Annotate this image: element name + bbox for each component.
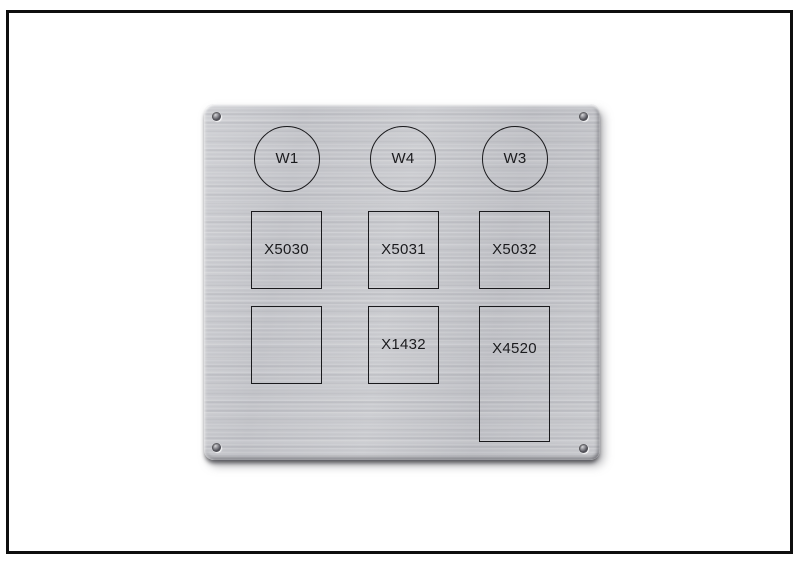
screw-hole-icon [579, 112, 588, 121]
screw-hole-icon [212, 443, 221, 452]
engraved-circle-w4: W4 [370, 126, 436, 192]
square-label: X5030 [264, 241, 309, 259]
screw-hole-icon [212, 112, 221, 121]
square-label: X5032 [492, 241, 537, 259]
engraved-square-x5030: X5030 [251, 211, 322, 289]
circle-label: W3 [503, 150, 526, 168]
square-label: X5031 [381, 241, 426, 259]
product-photo-canvas: W1 W4 W3 X5030 X5031 X5032 X1432 X4520 [0, 0, 800, 565]
square-label: X4520 [492, 340, 537, 358]
square-label: X1432 [381, 336, 426, 354]
engraved-square-x5032: X5032 [479, 211, 550, 289]
engraved-square-x5031: X5031 [368, 211, 439, 289]
engraved-circle-w1: W1 [254, 126, 320, 192]
engraved-circle-w3: W3 [482, 126, 548, 192]
circle-label: W1 [275, 150, 298, 168]
engraved-rect-x4520: X4520 [479, 306, 550, 442]
engraved-square-blank [251, 306, 322, 384]
engraved-metal-panel: W1 W4 W3 X5030 X5031 X5032 X1432 X4520 [204, 104, 600, 460]
engraved-square-x1432: X1432 [368, 306, 439, 384]
circle-label: W4 [391, 150, 414, 168]
screw-hole-icon [579, 444, 588, 453]
